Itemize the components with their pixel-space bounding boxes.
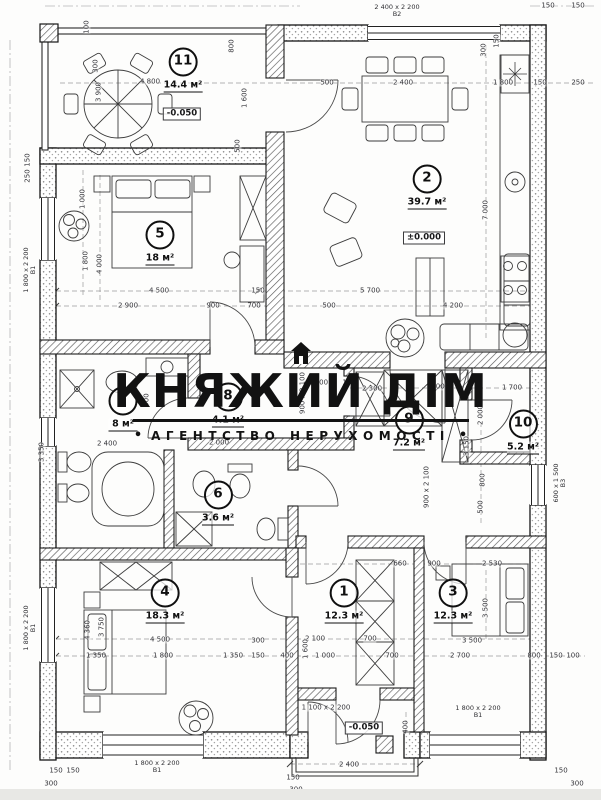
dimension-label: 1 000 [315,653,335,660]
dimension-label: 5 700 [360,288,380,295]
dimension-label: 1 600 [303,639,310,659]
room-label-8: 84.1 м² [212,383,244,428]
window-label: 1 800 х 2 200В1 [23,605,37,650]
dimension-label: 800 [229,39,236,52]
room-label-9: 97.2 м² [393,406,425,451]
dimension-label: 100 [84,20,91,33]
dimension-label: 3 350 [39,442,46,462]
dimension-label: 150 [549,653,562,660]
room-area-text: 4.1 м² [212,415,244,428]
dimension-label: 500 [478,500,485,513]
dimension-label: 150 [251,288,264,295]
dimension-label: 500 [322,303,335,310]
dimension-label: 4 800 [140,79,160,86]
room-number-circle: 9 [395,406,424,435]
dimension-label: 300 [93,59,100,72]
dimension-label: 1 500 [308,380,328,387]
dimension-label: 100 [342,380,355,387]
dimension-label: 3 900 [96,82,103,102]
room-label-11: 1114.4 м² [164,48,203,93]
room-number-circle: 5 [146,221,175,250]
room-number-circle: 7 [109,387,138,416]
floorplan-canvas: 112.3 м²239.7 м²312.3 м²418.3 м²518 м²63… [0,0,601,800]
dimension-label: 250 [25,169,32,182]
dimension-label: 3 500 [483,598,490,618]
dimension-label: 1 000 [80,189,87,209]
window-label: 2 400 х 2 200В2 [374,4,419,18]
dimension-label: 4 000 [97,254,104,274]
room-area-text: 12.3 м² [434,611,473,624]
dimension-label: 1 100 х 2 200 [302,705,351,712]
window-label: 1 800 х 2 200В1 [23,247,37,292]
dimension-label: 150 [49,768,62,775]
dimension-label: 400 [280,653,293,660]
dimension-label: 700 [385,653,398,660]
dimension-label: 700 [247,303,260,310]
room-area-text: 5.2 м² [507,442,539,455]
dimension-label: 900 [206,303,219,310]
room-number-circle: 8 [214,383,243,412]
elevation-mark: ±0.000 [403,232,445,245]
room-area-text: 3.6 м² [202,513,234,526]
dimension-label: 100 [431,384,444,391]
dimension-label: 2 400 [393,80,413,87]
window-code: В1 [30,247,37,292]
room-number-circle: 1 [330,579,359,608]
dimension-label: 900 [427,561,440,568]
dimension-label: 1 800 [493,80,513,87]
room-number-circle: 2 [413,165,442,194]
dimension-label: 1 700 [502,385,522,392]
dimension-label: 1 600 [242,88,249,108]
dimension-label: 1 800 [153,653,173,660]
elevation-mark: -0.050 [163,108,201,121]
room-number-circle: 11 [169,48,198,77]
dimension-label: 250 [571,80,584,87]
room-area-text: 18 м² [146,253,175,266]
dimension-label: 2 400 [339,762,359,769]
room-label-4: 418.3 м² [146,579,185,624]
room-area-text: 12.3 м² [325,611,364,624]
window-label: 1 800 х 2 200В1 [134,760,179,774]
dimension-label: 300 [44,781,57,788]
dimension-label: 3 150 [464,436,471,456]
window-code: В2 [374,11,419,18]
labels-layer: 112.3 м²239.7 м²312.3 м²418.3 м²518 м²63… [0,0,601,800]
dimension-label: 3 500 [462,638,482,645]
room-number-circle: 10 [509,410,538,439]
dimension-label: 1 800 [83,251,90,271]
dimension-label: 300 [251,638,264,645]
room-area-text: 14.4 м² [164,80,203,93]
dimension-label: 2 000 [478,405,485,425]
room-label-10: 105.2 м² [507,410,539,455]
dimension-label: 2 900 [118,303,138,310]
dimension-label: 900 х 2 100 [424,466,431,508]
window-code: В1 [455,712,500,719]
window-code: В1 [134,767,179,774]
room-area-text: 7.2 м² [393,438,425,451]
dimension-label: 3 750 [99,617,106,637]
room-area-text: 18.3 м² [146,611,185,624]
room-label-2: 239.7 м² [408,165,447,210]
dimension-label: 900 х 2 100 [300,372,307,414]
dimension-label: 400 [403,720,410,733]
room-label-5: 518 м² [146,221,175,266]
dimension-label: 4 360 [85,620,92,640]
dimension-label: 1 350 [223,653,243,660]
dimension-label: 150 [25,153,32,166]
room-label-3: 312.3 м² [434,579,473,624]
photo-edge-band [0,789,601,800]
room-area-text: 8 м² [109,419,138,432]
room-label-6: 63.6 м² [202,481,234,526]
dimension-label: 500 [320,80,333,87]
room-number-circle: 3 [439,579,468,608]
dimension-label: 150 [494,34,501,47]
dimension-label: 800 [527,653,540,660]
dimension-label: 2 530 [482,561,502,568]
room-number-circle: 6 [204,481,233,510]
dimension-label: 2 700 [450,653,470,660]
dimension-label: 100 [566,653,579,660]
dimension-label: 300 [570,781,583,788]
dimension-label: 2 400 [97,441,117,448]
dimension-label: 150 [541,3,554,10]
window-code: В3 [560,464,567,503]
room-label-7: 78 м² [109,387,138,432]
dimension-label: 500 [235,139,242,152]
dimension-label: 150 [554,768,567,775]
dimension-label: 4 500 [149,288,169,295]
dimension-label: 2 000 [209,440,229,447]
dimension-label: 660 [393,561,406,568]
dimension-label: 150 [286,775,299,782]
dimension-label: 800 [480,473,487,486]
dimension-label: 1 350 [86,653,106,660]
window-code: В1 [30,605,37,650]
dimension-label: 150 [571,3,584,10]
dimension-label: 150 [533,80,546,87]
window-label: 1 800 х 2 200В1 [455,705,500,719]
dimension-label: 300 [481,43,488,56]
dimension-label: 150 [251,653,264,660]
dimension-label: 4 200 [443,303,463,310]
elevation-mark: -0.050 [345,722,383,735]
dimension-label: 900 [144,393,151,406]
room-number-circle: 4 [151,579,180,608]
room-label-1: 112.3 м² [325,579,364,624]
dimension-label: 700 [363,636,376,643]
room-area-text: 39.7 м² [408,197,447,210]
window-label: 600 х 1 500В3 [553,464,567,503]
dimension-label: 2 300 [362,386,382,393]
dimension-label: 4 500 [150,637,170,644]
dimension-label: 7 000 [483,200,490,220]
dimension-label: 150 [66,768,79,775]
